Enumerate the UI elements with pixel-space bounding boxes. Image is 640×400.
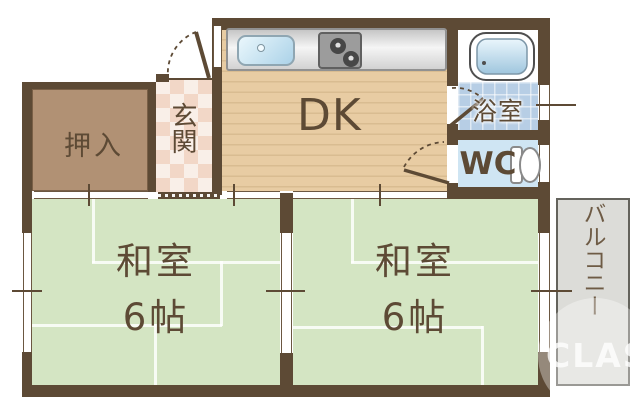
bathroom-label: 浴室 bbox=[458, 92, 538, 128]
room-size: 6帖 bbox=[320, 290, 510, 346]
bathtub-icon bbox=[470, 33, 534, 80]
wc-label: WC bbox=[459, 146, 517, 182]
japanese-room-right-label: 和室 6帖 bbox=[320, 234, 510, 345]
wc-door-swing-icon bbox=[404, 142, 444, 167]
entrance-label: 玄関 bbox=[171, 102, 201, 188]
closet-label: 押入 bbox=[40, 124, 148, 163]
watermark-text: CLASM bbox=[546, 336, 640, 375]
entrance-door-leaf-icon bbox=[196, 32, 209, 78]
room-name: 和室 bbox=[320, 234, 510, 290]
wc-door-leaf-icon bbox=[404, 170, 449, 183]
floor-plan: 押入 玄関 DK 浴室 WC 和室 6帖 和室 6帖 バルコニー CLASM bbox=[0, 0, 640, 400]
room-size: 6帖 bbox=[61, 290, 251, 346]
dk-label: DK bbox=[297, 90, 362, 141]
room-name: 和室 bbox=[61, 234, 251, 290]
entrance-door-swing-icon bbox=[168, 32, 196, 77]
japanese-room-left-label: 和室 6帖 bbox=[61, 234, 251, 345]
